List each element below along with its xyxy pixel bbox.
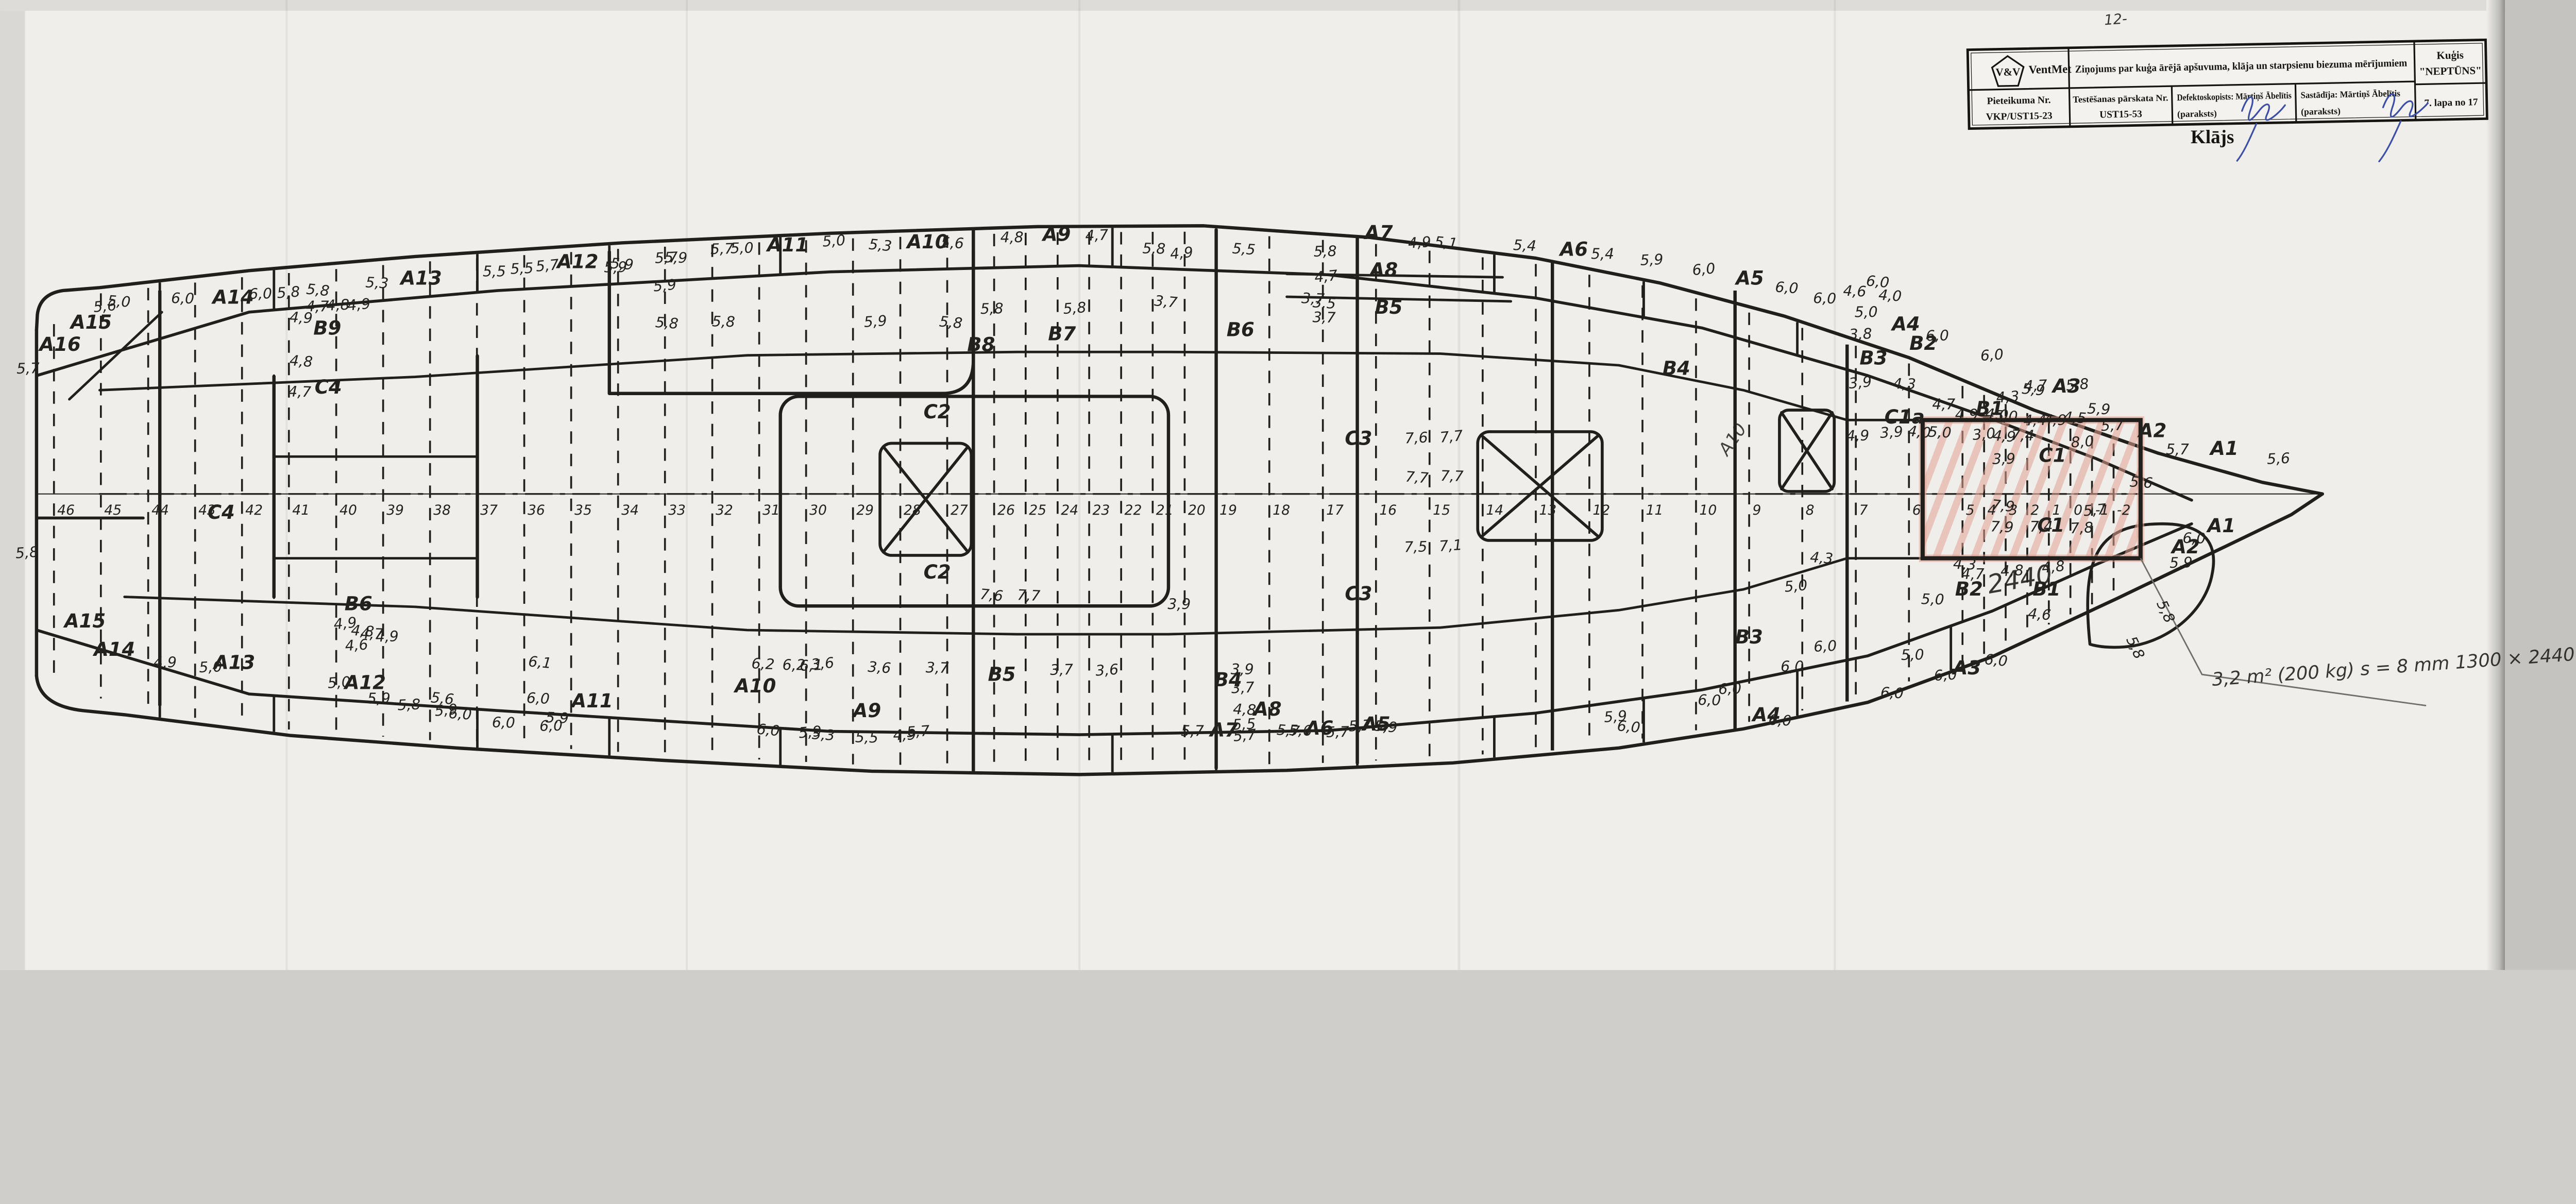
thickness-value: 3,7 (1301, 290, 1325, 308)
thickness-value: 4,9 (2043, 411, 2067, 429)
compartment-label: A9 (852, 700, 881, 722)
compartment-label: A5 (1734, 267, 1764, 290)
frame-number: 31 (762, 502, 780, 518)
thickness-value: 5,9 (604, 259, 627, 276)
compartment-label: A2 (2137, 419, 2166, 442)
thickness-value: 6,0 (1934, 666, 1958, 684)
frame-number: 23 (1093, 502, 1110, 518)
frame-number: 28 (904, 502, 921, 518)
thickness-value: 7,7 (1017, 586, 1041, 604)
compartment-label: C4 (208, 501, 235, 523)
thickness-value: 5,7 (16, 360, 40, 377)
thickness-value: 5,8 (2065, 375, 2090, 394)
thickness-value: 7,7 (1440, 467, 1464, 485)
thickness-value: 4,3 (1996, 388, 2020, 406)
frame-number: 46 (57, 502, 75, 518)
frame-number: 39 (386, 502, 404, 518)
frame-number: 32 (716, 502, 733, 518)
frame-number: 41 (292, 502, 310, 518)
thickness-value: 5,6 (430, 689, 455, 708)
thickness-value: 5,6 (940, 234, 964, 252)
thickness-value: 5,7 (2166, 441, 2189, 458)
thickness-value: 4,7 (1961, 566, 1985, 583)
frame-number: 10 (1699, 502, 1717, 518)
compartment-label: A12 (555, 250, 598, 273)
compartment-label: B5 (988, 663, 1016, 685)
thickness-value: 7,7 (1405, 468, 1429, 487)
frame-number: 11 (1646, 502, 1663, 518)
drawing-caption: Klājs (2191, 127, 2234, 148)
application-label: Pieteikuma Nr. (1987, 95, 2050, 107)
frame-number: 9 (1753, 502, 1761, 518)
thickness-value: 3,6 (1095, 661, 1119, 680)
thickness-value: 4,7 (2024, 377, 2047, 395)
compartment-label: A13 (399, 267, 442, 290)
thickness-value: 5,5 (855, 729, 879, 747)
compartment-label: A16 (38, 333, 81, 355)
thickness-value: 5,0 (1928, 423, 1952, 442)
thickness-value: 5,5 (483, 263, 506, 280)
compartment-label: B5 (1375, 296, 1402, 318)
application-no: VKP/UST15-23 (1986, 110, 2053, 122)
frame-number: 0 (2074, 502, 2082, 518)
compartment-label: A15 (63, 610, 106, 632)
thickness-value: 6,0 (1718, 680, 1742, 698)
compartment-label: B7 (1048, 323, 1076, 345)
thickness-value: 4,7 (1314, 267, 1338, 286)
frame-number: 36 (528, 502, 545, 518)
thickness-value: 7,7 (1439, 427, 1464, 446)
frame-number: 22 (1125, 502, 1142, 518)
frame-number: 7 (1859, 502, 1868, 518)
thickness-value: 5,4 (1513, 236, 1536, 255)
thickness-value: 3,6 (810, 654, 835, 673)
thickness-value: 4,7 (1932, 396, 1955, 413)
frame-number: 5 (1966, 502, 1975, 518)
compartment-label: A10 (733, 675, 776, 697)
thickness-value: 3,7 (1312, 309, 1336, 326)
compartment-label: C1 (2039, 445, 2066, 467)
frame-number: 12 (1592, 502, 1610, 518)
thickness-value: 5,8 (939, 313, 963, 332)
thickness-value: 5,7 (1181, 722, 1204, 739)
scanned-report-page: 4645444342414039383736353433323130292827… (0, 0, 2576, 970)
thickness-value: 3,8 (1849, 325, 1872, 343)
thickness-value: 5,5 (510, 260, 534, 278)
thickness-value: 5,7 (906, 722, 930, 741)
thickness-value: 6,0 (756, 721, 781, 740)
thickness-value: 7,8 (2070, 519, 2094, 537)
frame-number: 27 (951, 502, 968, 518)
thickness-value: 3,7 (925, 659, 949, 676)
frame-number: 15 (1433, 502, 1450, 518)
compartment-label: A1 (2209, 437, 2238, 460)
thickness-value: 6,1 (528, 653, 552, 672)
thickness-value: 5,8 (276, 283, 300, 301)
thickness-value: 5,9 (2170, 554, 2193, 571)
frame-number: 6 (1912, 502, 1921, 518)
thickness-value: 5,0 (199, 658, 223, 676)
thickness-value: 4,7 (1085, 226, 1109, 244)
thickness-value: 3,6 (867, 658, 891, 677)
thickness-value: 6,0 (1880, 684, 1904, 702)
thickness-value: 5,9 (545, 709, 569, 727)
author-sign-label: (paraksts) (2301, 106, 2341, 116)
thickness-value: 7,4 (2011, 427, 2035, 444)
thickness-value: 7,9 (1991, 496, 2015, 515)
inspector-sign-label: (paraksts) (2177, 108, 2217, 119)
frame-number: 19 (1219, 502, 1237, 518)
logo-mark: V&V (1995, 65, 2020, 78)
thickness-value: 5,6 (2266, 450, 2290, 468)
thickness-value: 7,1 (1438, 536, 1463, 555)
thickness-value: 3,9 (1167, 596, 1191, 613)
thickness-value: 5,7 (2082, 500, 2107, 519)
thickness-value: 4,9 (1846, 427, 1870, 445)
thickness-value: 5,7 (535, 256, 560, 275)
thickness-value: 5,9 (1374, 717, 1398, 736)
thickness-value: 5,0 (1784, 576, 1808, 596)
frame-number: 29 (856, 502, 874, 518)
compartment-label: C2 (924, 561, 951, 583)
thickness-value: 6,0 (1775, 278, 1799, 297)
thickness-value: 6,0 (1698, 691, 1721, 709)
logo-name: VentMet (2028, 62, 2072, 76)
thickness-value: 4,9 (1408, 233, 1432, 252)
compartment-label: A9 (1041, 223, 1071, 245)
frame-number: 26 (997, 502, 1015, 518)
page-number: 7. lapa no 17 (2424, 97, 2478, 109)
compartment-label: A14 (92, 638, 135, 660)
compartment-label: B3 (1859, 347, 1887, 369)
thickness-value: 7,6 (979, 586, 1004, 605)
frame-number: 33 (668, 502, 686, 518)
thickness-value: 7,5 (1404, 538, 1428, 556)
thickness-value: 6,0 (492, 714, 516, 732)
compartment-label: A1 (2206, 515, 2235, 537)
thickness-value: 6,0 (249, 285, 273, 302)
frame-number: 8 (1806, 502, 1815, 518)
frame-number: 17 (1326, 502, 1344, 518)
compartment-label: C3 (1345, 428, 1372, 450)
compartment-label: B6 (1227, 319, 1255, 341)
thickness-value: 6,0 (2182, 530, 2206, 547)
thickness-value: 6,0 (1984, 651, 2008, 670)
thickness-value: 5,7 (1232, 726, 1257, 745)
ship-label: Kuģis (2436, 49, 2464, 62)
frame-number: 35 (574, 502, 592, 518)
thickness-value: 4,6 (345, 636, 369, 654)
compartment-label: B3 (1735, 626, 1763, 648)
thickness-value: 6,2 (751, 655, 775, 673)
thickness-value: 5,3 (811, 725, 836, 744)
thickness-value: 4,9 (154, 654, 177, 671)
thickness-value: 5,9 (863, 312, 888, 331)
compartment-label: B6 (345, 592, 372, 615)
thickness-value: 3,7 (1050, 661, 1074, 679)
frame-number: 45 (104, 502, 122, 518)
thickness-value: 4,9 (376, 628, 399, 646)
pencil-annotation: 12- (2104, 11, 2128, 28)
thickness-value: 5,0 (1855, 304, 1878, 321)
frame-number: 40 (340, 502, 357, 518)
thickness-value: 5,9 (653, 276, 677, 295)
thickness-value: 6,0 (1814, 637, 1837, 655)
thickness-value: 5,0 (107, 292, 131, 311)
compartment-label: B4 (1663, 358, 1690, 380)
paper-background (0, 0, 2576, 970)
thickness-value: 3,7 (1231, 679, 1255, 697)
thickness-value: 3,9 (1848, 373, 1873, 392)
thickness-value: 5,0 (730, 239, 754, 257)
thickness-value: 4,8 (1001, 229, 1024, 246)
thickness-value: 4,7 (306, 298, 329, 315)
ship-name: "NEPTŪNS" (2419, 64, 2482, 78)
thickness-value: 5,8 (15, 544, 39, 562)
thickness-value: 6,0 (1691, 260, 1716, 279)
thickness-value: 6,0 (526, 689, 550, 707)
compartment-label: B8 (967, 334, 995, 356)
frame-number: 13 (1539, 502, 1556, 518)
thickness-value: 4,9 (347, 295, 371, 314)
thickness-value: 4,8 (289, 352, 313, 370)
thickness-value: 3,9 (1879, 423, 1904, 442)
frame-number: 42 (245, 502, 263, 518)
frame-number: 14 (1486, 502, 1503, 518)
thickness-value: 5,0 (1921, 590, 1944, 608)
thickness-value: 4,0 (1878, 286, 1902, 305)
compartment-label: A11 (766, 234, 808, 256)
thickness-value: 5,8 (1142, 240, 1166, 257)
thickness-value: 5,7 (1326, 723, 1350, 741)
thickness-value: 3,7 (1154, 292, 1178, 311)
test-report-no: UST15-53 (2099, 109, 2142, 121)
test-report-label: Testēšanas pārskata Nr. (2073, 92, 2168, 105)
thickness-value: 4,9 (1170, 244, 1194, 263)
thickness-value: 5,9 (1640, 251, 1664, 269)
thickness-value: 5,4 (1591, 246, 1614, 263)
thickness-value: 5,8 (980, 300, 1004, 317)
thickness-value: 5,3 (365, 274, 389, 292)
thickness-value: 5,6 (2129, 473, 2154, 491)
compartment-label: C4 (315, 376, 342, 398)
thickness-value: 4,3 (1809, 549, 1834, 567)
frame-number: 16 (1379, 502, 1397, 518)
thickness-value: 5,8 (712, 313, 736, 330)
thickness-value: 5,0 (822, 232, 846, 250)
thickness-value: 4,9 (1955, 406, 1978, 423)
thickness-value: 5,1 (1434, 233, 1459, 252)
thickness-value: 6,0 (1813, 290, 1837, 307)
frame-number: 24 (1061, 502, 1078, 518)
thickness-value: 5,7 (2100, 416, 2124, 434)
thickness-value: 5,7 (654, 249, 678, 267)
frame-number: 30 (809, 502, 827, 518)
thickness-value: 5,8 (1062, 299, 1087, 317)
thickness-value: 5,6 (1289, 722, 1312, 739)
thickness-value: 5,8 (1313, 243, 1337, 260)
thickness-value: 6,0 (1980, 346, 2004, 364)
compartment-label: A8 (1368, 259, 1398, 281)
thickness-value: 5,0 (1901, 646, 1924, 664)
thickness-value: 4,6 (1843, 282, 1867, 300)
thickness-value: 5,8 (397, 696, 421, 714)
thickness-value: 8,0 (2071, 433, 2095, 451)
compartment-label: A7 (1363, 222, 1393, 244)
thickness-value: 7,9 (1990, 518, 2014, 536)
thickness-value: 5,0 (327, 673, 351, 692)
thickness-value: 6,0 (1926, 327, 1950, 344)
compartment-label: A11 (570, 690, 613, 712)
thickness-value: 6,0 (1768, 711, 1792, 730)
thickness-value: 5,0 (1994, 407, 2018, 425)
frame-number: 18 (1273, 502, 1290, 518)
thickness-value: 4,6 (2027, 605, 2052, 624)
frame-number: 37 (480, 502, 498, 518)
thickness-value: 4,4 (2023, 412, 2047, 429)
thickness-value: 4,8 (1233, 701, 1257, 719)
thickness-value: 5,7 (1348, 717, 1372, 735)
frame-number: 21 (1156, 502, 1174, 518)
thickness-value: 5,5 (1232, 240, 1256, 259)
thickness-value: 6,0 (1781, 658, 1804, 675)
thickness-value: 7,4 (2030, 518, 2053, 535)
thickness-value: 7,6 (1404, 429, 1428, 447)
compartment-label: C2 (924, 401, 951, 423)
frame-number: 20 (1188, 502, 1206, 518)
thickness-value: 5,9 (367, 690, 391, 707)
thickness-value: 5,8 (655, 314, 679, 332)
compartment-label: A4 (1890, 313, 1920, 335)
thickness-value: 3,9 (1992, 450, 2016, 468)
compartment-label: A14 (211, 286, 254, 309)
compartment-label: C3 (1345, 583, 1372, 605)
thickness-value: 6,0 (1616, 717, 1641, 736)
compartment-label: B9 (313, 317, 341, 339)
thickness-value: 3,9 (1231, 661, 1254, 678)
frame-number: 25 (1029, 502, 1046, 518)
thickness-value: 5,3 (868, 236, 893, 255)
frame-number: 34 (621, 502, 639, 518)
frame-number: 44 (151, 502, 169, 518)
thickness-value: 6,0 (171, 290, 195, 307)
thickness-value: 4,7 (288, 383, 312, 400)
thickness-value: 4,8 (326, 296, 350, 314)
deck-plan-drawing: 4645444342414039383736353433323130292827… (0, 0, 2576, 970)
frame-number: -2 (2117, 502, 2131, 518)
thickness-value: 4,3 (1893, 375, 1917, 393)
compartment-label: A6 (1558, 238, 1588, 260)
frame-number: 38 (433, 502, 451, 518)
thickness-value: 5,9 (2087, 400, 2111, 418)
